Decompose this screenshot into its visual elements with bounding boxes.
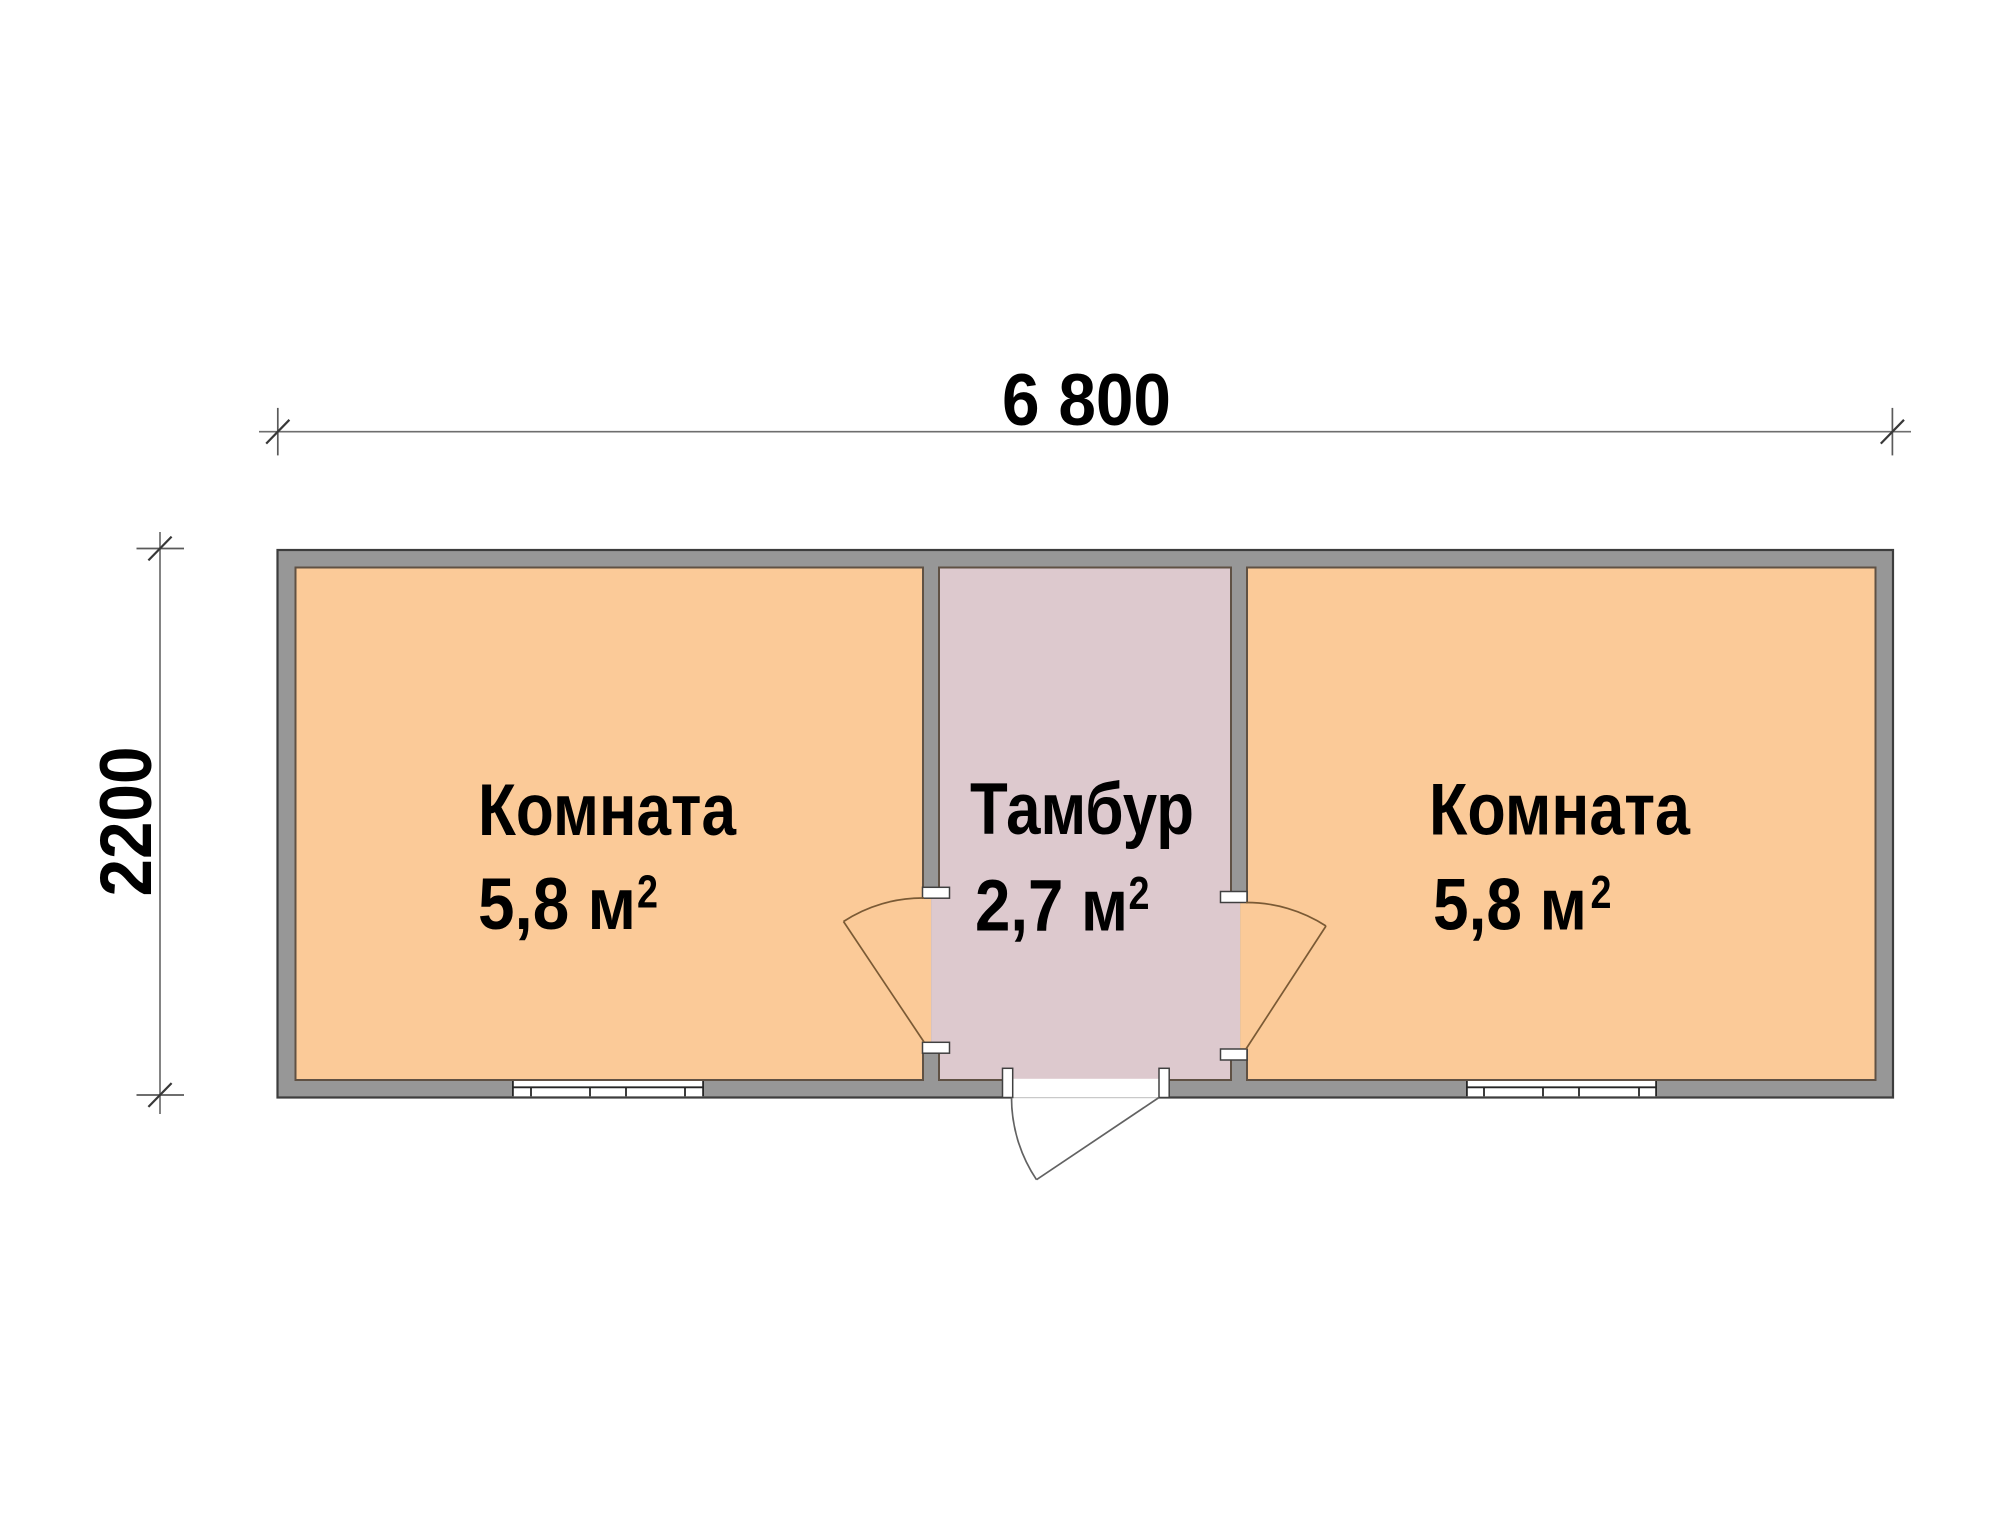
svg-text:2: 2 [637,866,658,918]
svg-text:6 800: 6 800 [1002,360,1171,441]
svg-text:2,7 м: 2,7 м [975,866,1128,947]
svg-text:Тамбур: Тамбур [970,769,1194,850]
svg-text:2: 2 [1591,866,1612,918]
svg-text:5,8 м: 5,8 м [478,864,636,945]
svg-text:5,8 м: 5,8 м [1433,865,1587,946]
svg-text:2200: 2200 [86,747,167,897]
svg-text:Комната: Комната [478,770,737,851]
svg-text:2: 2 [1129,867,1150,919]
svg-text:Комната: Комната [1429,770,1691,851]
